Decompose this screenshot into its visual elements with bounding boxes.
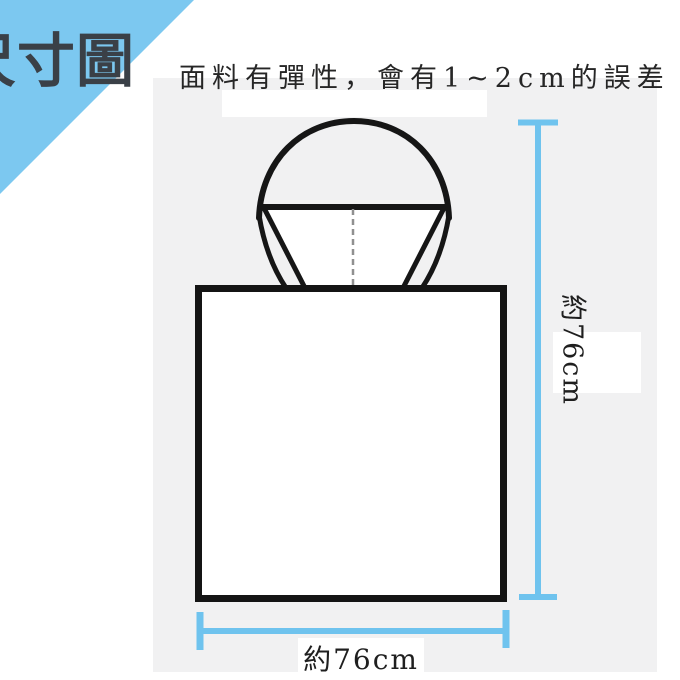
height-dimension-label: 約76cm [556, 294, 595, 406]
height-dimension [518, 123, 558, 598]
body-outline [199, 289, 504, 599]
width-dimension-label: 約76cm [298, 638, 424, 678]
hood-dome-outline [259, 121, 449, 218]
tolerance-note: 面料有彈性，會有1~2cm的誤差 [179, 56, 659, 95]
page-title: 尺寸圖 [0, 14, 135, 98]
